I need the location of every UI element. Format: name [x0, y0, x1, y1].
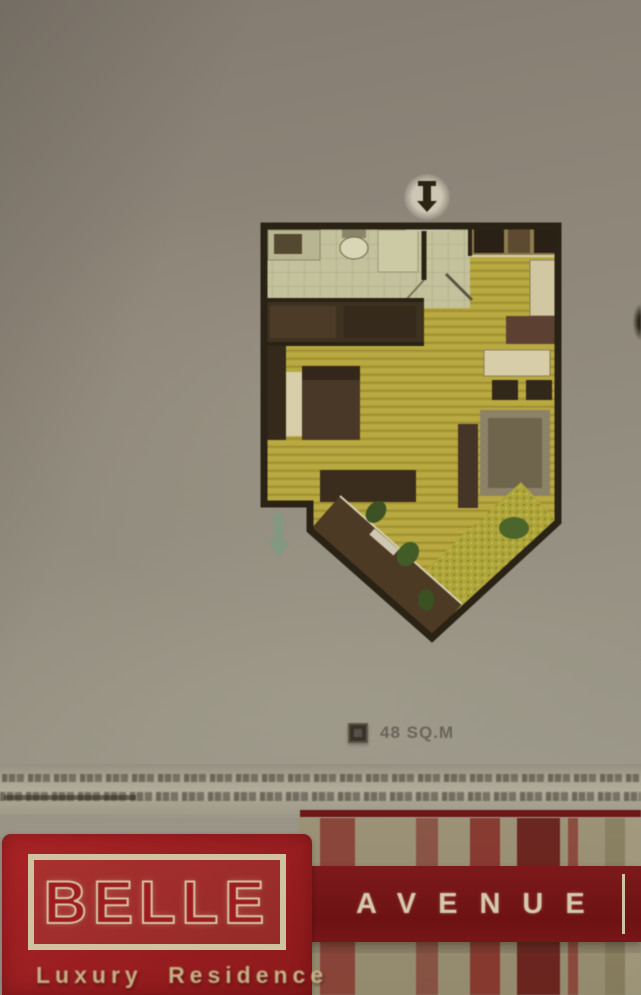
stove [474, 229, 504, 253]
entrance-arrow-icon [404, 174, 450, 220]
band-divider [622, 874, 625, 934]
sideboard [506, 316, 558, 344]
belle-logo: BELLE Luxury Residence [2, 834, 312, 995]
pillows [302, 366, 360, 380]
bath-sink [274, 234, 302, 254]
thai-disclaimer [0, 764, 641, 814]
wardrobe-door [344, 306, 416, 338]
avenue-band: AVENUE [298, 866, 641, 942]
brochure-photo: 48 SQ.M AVENUE BELLE Luxury Residence [0, 0, 641, 995]
page-edge-mark-icon [627, 300, 641, 346]
unit-area: 48 SQ.M [348, 723, 454, 743]
headboard [286, 372, 302, 436]
tv-stand [320, 470, 416, 502]
brand-series: AVENUE [298, 866, 641, 942]
wardrobe-door [270, 306, 336, 338]
belle-logo-frame: BELLE [28, 854, 286, 950]
dining-table [484, 350, 550, 376]
red-divider-rule [300, 810, 641, 817]
area-marker-icon [348, 723, 368, 743]
sofa-seat [488, 418, 542, 488]
brand-banner: AVENUE BELLE Luxury Residence [0, 818, 641, 995]
balcony-arrow-icon [263, 511, 293, 563]
toilet [340, 237, 368, 259]
shower [378, 230, 418, 272]
tall-cabinet [530, 260, 558, 316]
area-label: 48 SQ.M [380, 723, 454, 743]
fridge [534, 229, 556, 253]
brand-name: BELLE [44, 868, 271, 937]
dining-chair [526, 380, 552, 400]
brand-tagline: Luxury Residence [36, 962, 328, 989]
tv-cabinet [458, 424, 478, 508]
entry-hall [424, 226, 470, 308]
kitchen-sink [508, 229, 530, 253]
dining-chair [492, 380, 518, 400]
plant-icon [418, 589, 434, 611]
disclaimer-text-line [2, 774, 639, 782]
floor-plan [256, 216, 566, 644]
bush-icon [499, 517, 529, 539]
disclaimer-text-dash [4, 795, 136, 800]
